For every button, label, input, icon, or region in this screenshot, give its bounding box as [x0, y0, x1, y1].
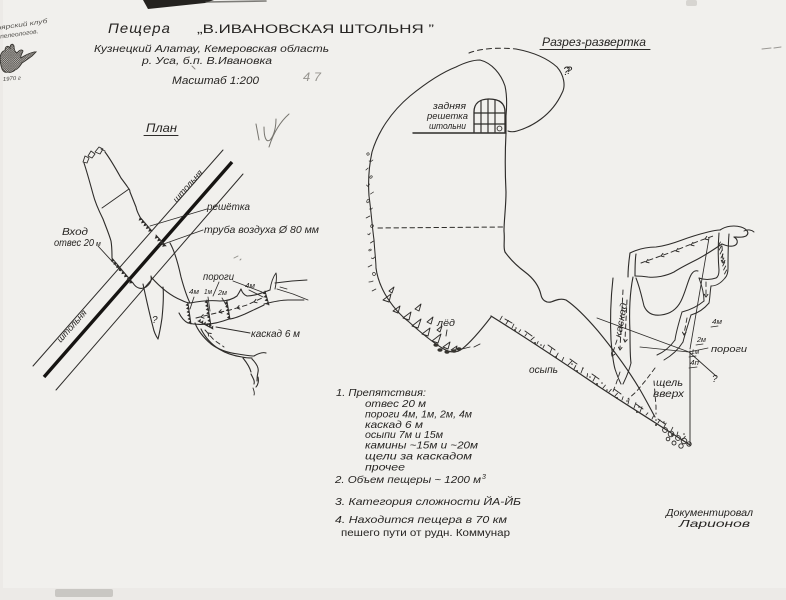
svg-text:пешего пути от рудн. Коммунар: пешего пути от рудн. Коммунар — [341, 527, 510, 539]
svg-text:4м: 4м — [189, 289, 199, 296]
svg-text:?: ? — [712, 374, 718, 385]
svg-text:4. Находится пещера в 70 км: 4. Находится пещера в 70 км — [335, 514, 507, 526]
svg-text:лёд: лёд — [436, 318, 455, 329]
svg-text:?: ? — [152, 315, 158, 326]
svg-text:щель: щель — [656, 378, 683, 389]
svg-text:пороги: пороги — [711, 344, 748, 355]
svg-text:Разрез-развертка: Разрез-развертка — [542, 37, 646, 49]
svg-text:Масштаб 1:200: Масштаб 1:200 — [172, 75, 260, 87]
svg-text:Кузнецкий Алатау, Кемеровска: Кузнецкий Алатау, Кемеровская область — [94, 43, 329, 55]
svg-text:отвес 20: отвес 20 — [54, 238, 94, 249]
svg-text:„В.ИВАНОВСКАЯ ШТОЛЬНЯ ”: „В.ИВАНОВСКАЯ ШТОЛЬНЯ ” — [197, 22, 434, 36]
svg-text:2. Объем пещеры ~ 1200 м: 2. Объем пещеры ~ 1200 м — [334, 474, 481, 486]
svg-text:вверх: вверх — [653, 389, 685, 400]
svg-text:План: План — [146, 123, 178, 135]
svg-text:труба воздуха Ø 80 мм: труба воздуха Ø 80 мм — [204, 224, 319, 236]
svg-text:1м: 1м — [204, 289, 212, 296]
svg-text:осыпь: осыпь — [529, 365, 558, 376]
svg-text:2м: 2м — [217, 290, 227, 297]
svg-text:решётка: решётка — [206, 201, 250, 213]
svg-text:3: 3 — [482, 474, 486, 481]
svg-text:1м: 1м — [691, 349, 700, 356]
svg-text:р. Уса, б.п. В.Ивановка: р. Уса, б.п. В.Ивановка — [141, 55, 272, 67]
svg-text:Ларионов: Ларионов — [678, 518, 751, 530]
svg-text:3. Категория сложности ЙА-Й: 3. Категория сложности ЙА-ЙБ — [335, 495, 521, 508]
svg-text:м: м — [96, 241, 101, 248]
svg-text:каскад 6 м: каскад 6 м — [251, 328, 300, 340]
svg-text:4п: 4п — [690, 360, 699, 367]
svg-text:прочее: прочее — [365, 462, 405, 474]
svg-text:Вход: Вход — [62, 227, 89, 238]
svg-text:4м: 4м — [712, 319, 722, 326]
svg-text:2м: 2м — [696, 337, 706, 344]
svg-text:штольни: штольни — [429, 121, 467, 132]
svg-text:Пещера: Пещера — [108, 20, 171, 36]
svg-text:?: ? — [566, 65, 573, 77]
svg-text:пороги: пороги — [203, 272, 234, 283]
svg-text:4 7: 4 7 — [303, 70, 322, 84]
svg-text:4м: 4м — [245, 283, 255, 290]
